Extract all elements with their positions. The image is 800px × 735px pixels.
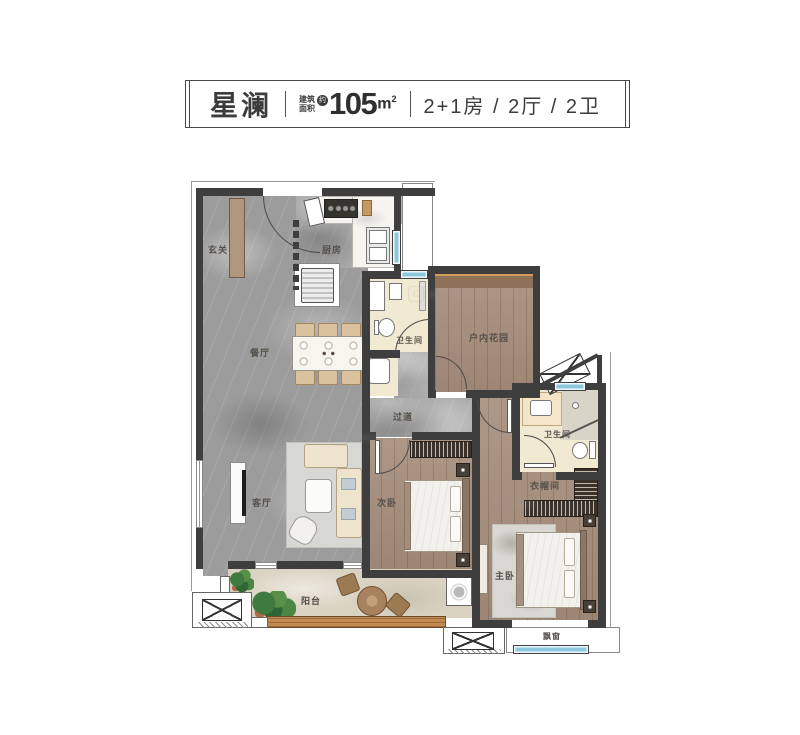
wall [480, 620, 512, 628]
pillow [450, 486, 461, 512]
room-label-bath1: 卫生间 [396, 335, 423, 346]
watermark-logo-icon: C [492, 496, 508, 512]
area-prefix-line2: 面积 [299, 104, 315, 113]
area-prefix: 建筑 面积 [299, 95, 315, 113]
wall [512, 383, 520, 480]
wall [362, 271, 370, 578]
room-label-bedroom2: 次卧 [377, 496, 397, 509]
nightstand [456, 553, 470, 567]
kitchen-window [392, 230, 401, 265]
balcony-deck-strip [266, 616, 446, 628]
sofa-cushion [341, 508, 356, 520]
room-label-entry: 玄关 [208, 243, 228, 256]
area-approx-badge: 约 [317, 95, 328, 106]
dining-chair [318, 370, 338, 385]
kitchen-sink-basin [369, 247, 387, 261]
bedroom2-headboard [462, 478, 470, 554]
wall [598, 383, 606, 627]
wall [394, 196, 401, 232]
wall [556, 472, 598, 480]
plan-title: 星澜 [210, 84, 272, 124]
room-label-living: 客厅 [252, 496, 272, 509]
bath1-window [400, 270, 428, 279]
stove [324, 199, 358, 218]
wall [466, 390, 540, 398]
exterior-notch [402, 183, 433, 271]
wall [512, 472, 522, 480]
pillow [564, 570, 575, 598]
wall [428, 390, 436, 398]
room-label-cloakroom: 衣帽间 [530, 479, 560, 492]
outer-face-line [191, 181, 192, 591]
area-unit: m2 [377, 94, 396, 113]
room-label-hallway: 过道 [393, 410, 413, 423]
watermark-logo-icon: C [332, 430, 348, 446]
toilet [378, 318, 395, 337]
bedroom2-wardrobe [410, 441, 472, 458]
room-label-kitchen: 厨房 [322, 243, 342, 256]
toilet-tank [589, 441, 596, 459]
header-divider [410, 91, 411, 117]
layout-summary: 2+1房 / 2厅 / 2卫 [424, 90, 602, 119]
ac-unit [202, 599, 242, 621]
outer-face-line [192, 181, 435, 182]
floorplan-page: 星澜 建筑 面积 约 105 m2 2+1房 / 2厅 / 2卫 [0, 0, 800, 735]
washbasin [389, 283, 402, 300]
header-inner-border-left [189, 81, 190, 127]
wall [533, 266, 540, 392]
living-side-window [196, 460, 203, 528]
bath2-basin [530, 400, 552, 416]
master-headboard [580, 530, 587, 610]
sofa-small [304, 444, 348, 468]
toilet [572, 442, 588, 459]
shoe-cabinet [229, 198, 245, 278]
shower-drain [572, 402, 579, 409]
plan-header: 星澜 建筑 面积 约 105 m2 2+1房 / 2厅 / 2卫 [185, 80, 630, 128]
area-unit-m: m [377, 96, 391, 113]
wall [196, 188, 263, 196]
watermark: C [332, 430, 377, 446]
outer-face-line [610, 352, 611, 628]
area-prefix-line1: 建筑 [299, 95, 315, 104]
dining-table [292, 336, 365, 371]
nightstand [583, 514, 596, 527]
area-unit-sup: 2 [391, 94, 396, 104]
wall [362, 570, 480, 578]
watermark-text-blur [511, 500, 537, 508]
pillow [564, 538, 575, 566]
kitchen-sink-basin [369, 230, 387, 244]
wall [472, 398, 480, 628]
bed-throw [516, 534, 524, 606]
shower [369, 281, 385, 311]
nightstand [456, 463, 470, 477]
balcony-door-right [343, 562, 362, 569]
wall [597, 355, 602, 385]
watermark-logo-icon: C [408, 286, 424, 302]
room-label-master: 主卧 [495, 569, 515, 582]
room-label-dining: 餐厅 [250, 346, 270, 359]
wall [196, 188, 203, 460]
watermark: C [408, 286, 453, 302]
kitchen-rack [362, 200, 372, 216]
sofa-cushion [341, 478, 356, 490]
balcony-door-left [255, 562, 277, 569]
watermark-text-blur [427, 290, 453, 298]
room-label-balcony: 阳台 [301, 594, 321, 607]
wall [277, 561, 343, 569]
pillow [450, 516, 461, 542]
dining-chair [341, 370, 361, 385]
header-inner-border-right [625, 81, 626, 127]
coffee-table [305, 479, 332, 513]
room-label-bath2: 卫生间 [544, 429, 571, 440]
bath2-window [554, 382, 586, 391]
ac-hatch [198, 622, 248, 628]
ac-unit [452, 632, 494, 650]
toilet-tank [374, 320, 379, 335]
wall [428, 266, 540, 274]
watermark-text-blur [351, 434, 377, 442]
watermark: C [492, 496, 537, 512]
nightstand [583, 600, 596, 613]
area-value: 105 [329, 86, 376, 122]
master-suite-door-leaf [507, 399, 512, 433]
header-divider [285, 91, 286, 117]
bath2-door-leaf [524, 463, 554, 468]
wall [412, 432, 475, 440]
wall [588, 620, 606, 628]
washing-machine [446, 577, 472, 606]
wall [322, 188, 435, 196]
area-block: 建筑 面积 约 105 m2 [299, 86, 396, 122]
refrigerator [301, 268, 334, 303]
dining-chair [295, 370, 315, 385]
wall [228, 561, 255, 569]
bed-throw [404, 482, 411, 550]
tv [242, 470, 246, 516]
vanity-basin [368, 358, 390, 384]
wall [196, 528, 203, 569]
room-label-garden: 户内花园 [469, 331, 509, 344]
bay-window-glass [513, 645, 589, 654]
room-label-bay-window: 飘窗 [543, 631, 561, 642]
balcony-table [357, 586, 387, 616]
